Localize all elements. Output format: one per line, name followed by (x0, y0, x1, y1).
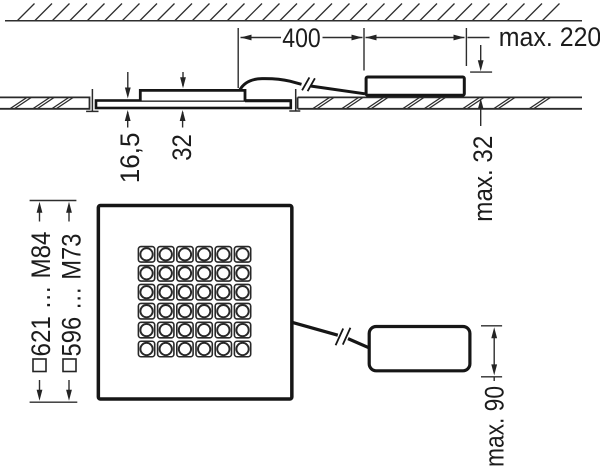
svg-text:max. 90: max. 90 (480, 386, 510, 467)
svg-text:max. 32: max. 32 (468, 136, 498, 222)
svg-text:596 … M73: 596 … M73 (56, 234, 86, 357)
svg-text:400: 400 (282, 23, 321, 53)
svg-text:16,5: 16,5 (115, 133, 145, 184)
svg-text:32: 32 (167, 134, 197, 161)
svg-text:max. 220: max. 220 (499, 22, 600, 52)
svg-text:621 … M84: 621 … M84 (26, 232, 56, 357)
